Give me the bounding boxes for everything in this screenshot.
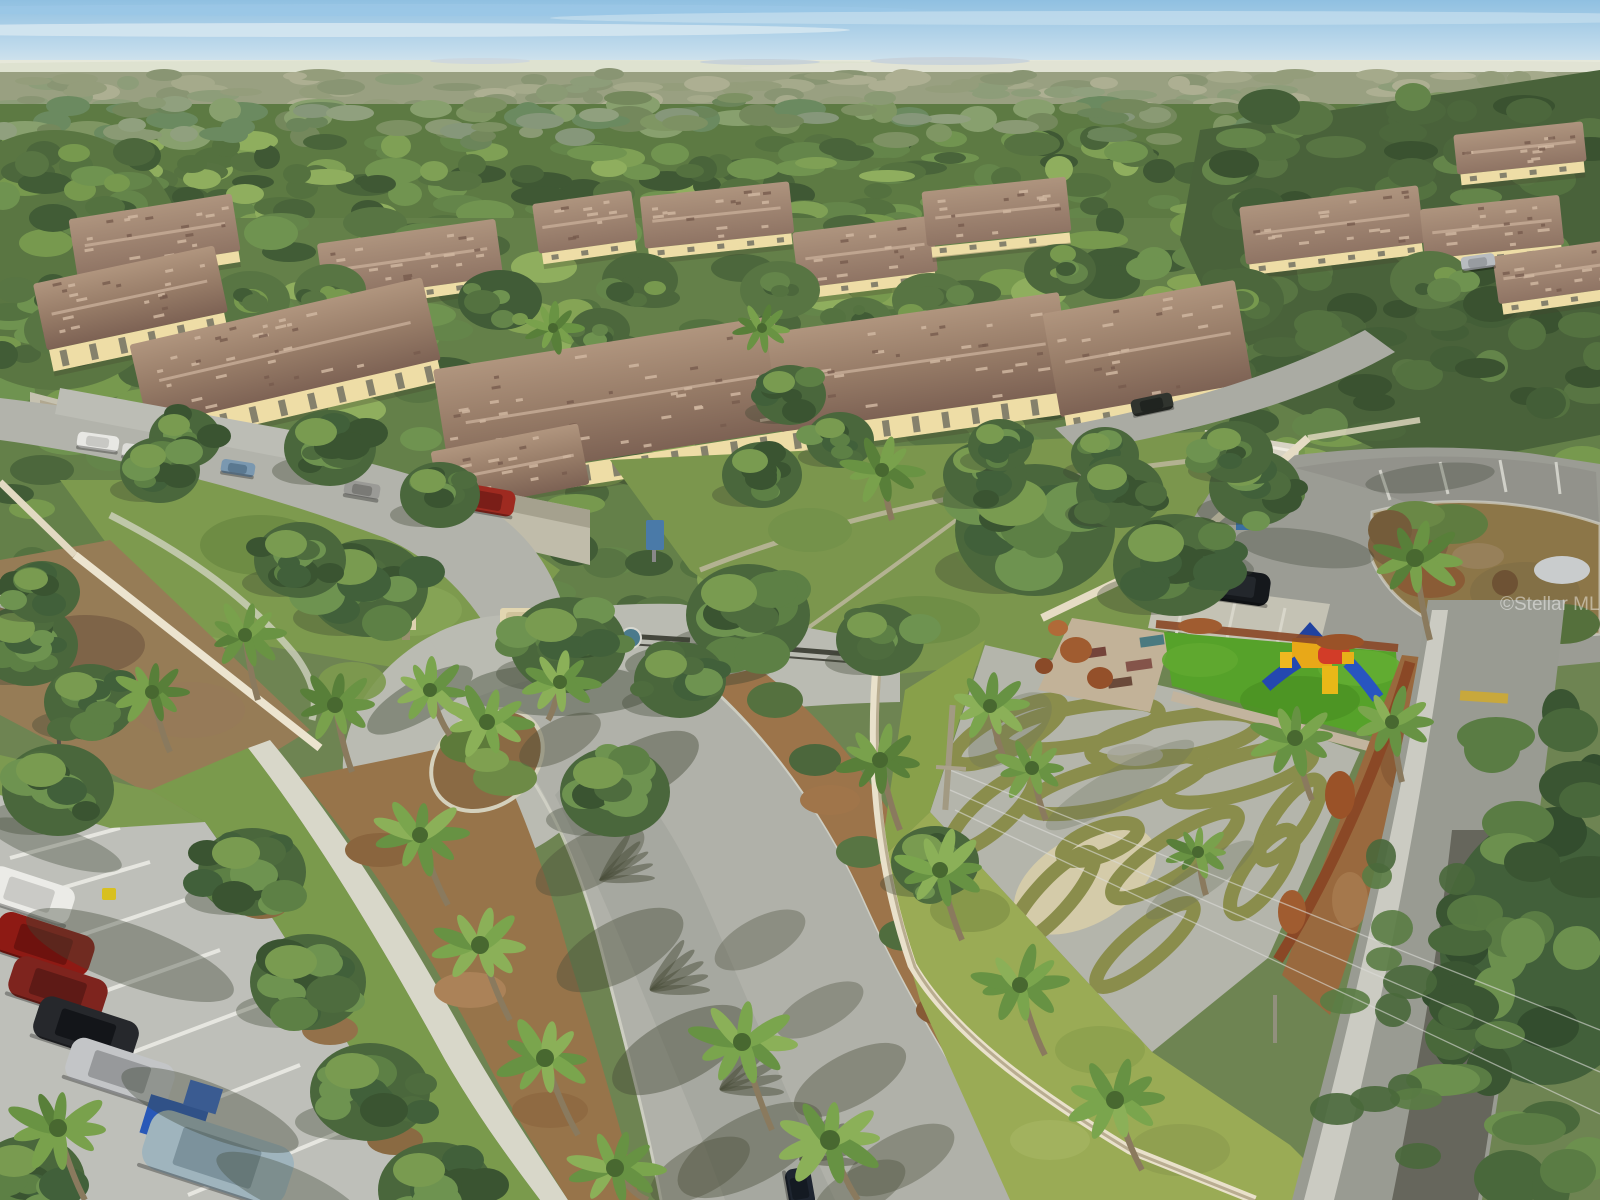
svg-text:©Stellar MLS: ©Stellar MLS — [1500, 594, 1600, 615]
